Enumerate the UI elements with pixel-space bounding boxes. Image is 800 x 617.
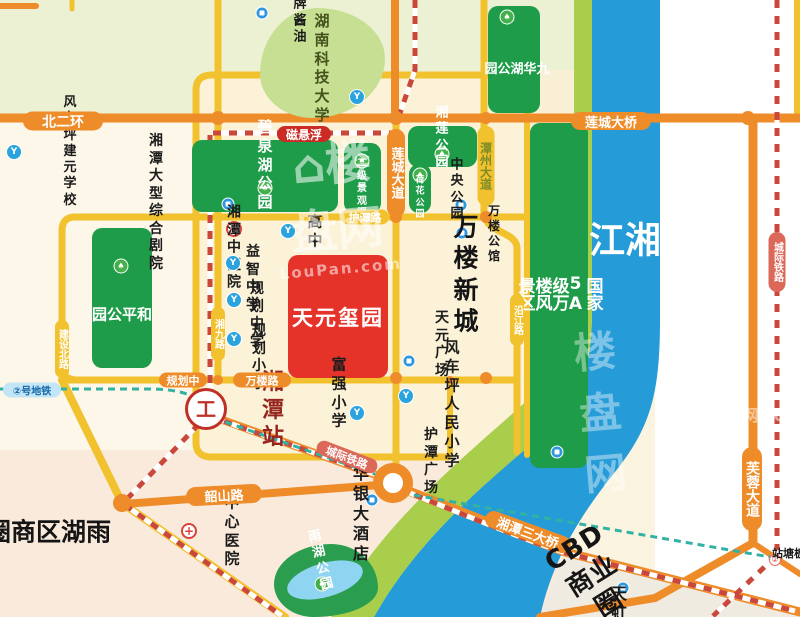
center-hospital-label: 中心医院 bbox=[224, 494, 239, 569]
beierhuan-road-label: 北二环 bbox=[23, 112, 103, 131]
tcm-hospital-label: 湘潭中医院 bbox=[227, 204, 241, 292]
gaozhong-school-label: 高中 bbox=[307, 212, 322, 250]
hnust-university-school-icon bbox=[349, 89, 365, 105]
huayin-hotel-label: 华银大酒店 bbox=[353, 464, 369, 564]
yanjiang-road-label: 沿江路 bbox=[510, 294, 524, 346]
heping-park-label: 和平公园 bbox=[91, 307, 151, 322]
fengcheping-renmin-school-school-icon bbox=[398, 388, 414, 404]
gaozhong-school-school-icon bbox=[280, 223, 296, 239]
wanlou-scenic-area-place-icon bbox=[551, 446, 564, 459]
xiangjiu-road-label: 湘九路 bbox=[211, 307, 225, 361]
fengcheping-renmin-school-label: 风车坪 人民小学 bbox=[444, 338, 459, 469]
xiangjiang-river-label: 湘江 bbox=[585, 221, 657, 261]
metro-line2-label: ②号地铁 bbox=[3, 383, 61, 398]
guihuazhong-road-label: 规划中 bbox=[159, 373, 207, 388]
jiuhua-lake-park-shape bbox=[488, 6, 540, 113]
wanlou-scenic-area-label: 国家5A级万楼风景区 bbox=[516, 274, 601, 314]
xianglian-park-label: 湘莲公园 bbox=[435, 106, 448, 171]
biquan-lake-park-label: 碧泉湖公园 bbox=[257, 118, 272, 212]
jiuhua-lake-park-tree-icon bbox=[500, 10, 515, 25]
jianshe-north-road-label: 建设北路 bbox=[55, 320, 69, 378]
wanlou-newtown-label: 万楼新城 bbox=[453, 212, 480, 337]
guihua-middle-school-school-icon bbox=[226, 292, 242, 308]
bantang-station-label: 板塘站 bbox=[772, 548, 800, 559]
furong-avenue-label: 芙蓉大道 bbox=[742, 447, 762, 531]
longpai-sauce-label: 龙牌酱油 bbox=[293, 0, 306, 46]
longpai-sauce-place-icon bbox=[256, 7, 269, 20]
hutan-road-label: 护潭路 bbox=[341, 210, 389, 225]
wanlou-road-label: 万楼路 bbox=[233, 373, 291, 388]
liancheng-avenue-label: 莲城大道 bbox=[387, 129, 405, 217]
fuqiang-primary-school-label: 富强小学 bbox=[331, 356, 346, 431]
grand-theater-label: 湘潭大型综合剧院 bbox=[149, 133, 163, 273]
xiangtan-location-map: 碧泉湖公园二级 景观渠湘莲公园荷花 公园九华湖公园和平公园国家5A级万楼风景区湖… bbox=[0, 0, 800, 617]
xiangtan-station-rail-icon bbox=[185, 388, 227, 430]
intercity-rail-east-label: 城际铁路 bbox=[769, 232, 786, 292]
wanlou-mansion-label: 万楼公馆 bbox=[488, 204, 500, 264]
yuhu-district-label: 雨湖区商圈 bbox=[0, 519, 110, 546]
maglev-label: 磁悬浮 bbox=[277, 126, 331, 142]
jiuhua-lake-park-label: 九华湖公园 bbox=[483, 62, 548, 75]
tianyuan-square-place-icon bbox=[403, 355, 416, 368]
heping-park-tree-icon bbox=[114, 259, 129, 274]
hutan-roundabout bbox=[378, 468, 408, 498]
fuqiang-primary-school-school-icon bbox=[349, 405, 365, 421]
liancheng-bridge-label: 莲城大桥 bbox=[571, 112, 651, 130]
shaoshan-road-label: 韶山路 bbox=[186, 484, 263, 507]
yizhi-middle-school-school-icon bbox=[225, 255, 241, 271]
heping-park-shape bbox=[92, 228, 152, 368]
hutan-square-label: 护潭广场 bbox=[424, 427, 438, 497]
guihua-primary-school-school-icon bbox=[226, 331, 242, 347]
center-hospital-hospital-icon bbox=[181, 523, 197, 539]
fengcheping-jianyuan-school-school-icon bbox=[6, 144, 22, 160]
hnust-university-label: 湖南科技大学 bbox=[314, 12, 329, 125]
tanzhou-avenue-label: 潭州大道 bbox=[478, 126, 495, 206]
hehua-park-label: 荷花 公园 bbox=[415, 176, 424, 221]
